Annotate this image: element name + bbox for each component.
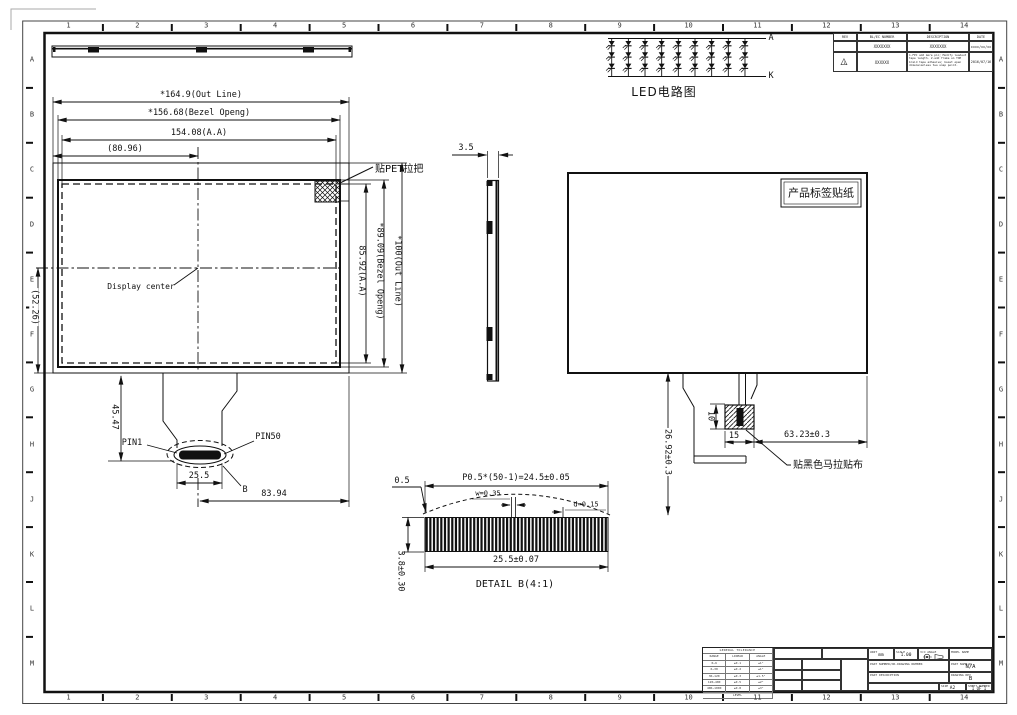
led-symbol bbox=[706, 52, 715, 61]
grid-column-label: 8 bbox=[549, 23, 553, 30]
grid-row-label: K bbox=[30, 551, 34, 558]
led-symbol bbox=[689, 41, 698, 50]
detail-b-title: DETAIL B(4:1) bbox=[476, 580, 554, 590]
unit-cell: UNITmm bbox=[868, 648, 894, 660]
led-symbol bbox=[689, 52, 698, 61]
projection-angle-cell: 3rd ANGLE bbox=[918, 648, 949, 660]
grid-column-label: 14 bbox=[960, 23, 968, 30]
grid-column-label: 5 bbox=[342, 695, 346, 702]
dim-bezel-height: *89.09(Bezel Openg) bbox=[375, 222, 384, 319]
led-symbol bbox=[623, 41, 632, 50]
detail-mark-label: B bbox=[242, 486, 247, 495]
size-cell: SIZEA2 bbox=[939, 683, 966, 692]
rev-row2-date: 2016/07/16 bbox=[969, 52, 993, 72]
grid-row-label: C bbox=[30, 167, 34, 174]
led-symbol bbox=[656, 52, 665, 61]
led-symbol bbox=[623, 64, 632, 73]
slash-cell: / bbox=[868, 683, 939, 692]
grid-row-label: B bbox=[30, 112, 34, 119]
led-symbol bbox=[606, 52, 615, 61]
led-symbol bbox=[606, 64, 615, 73]
sheet-number-cell: SHEET NUMBER1 OF 1 bbox=[966, 683, 992, 692]
drawing-rev-value: B bbox=[950, 676, 991, 682]
grid-row-label: C bbox=[999, 167, 1003, 174]
rev-row2-description-value: 1.FPC add more pin; Modify leadout tape … bbox=[908, 53, 968, 68]
grid-column-label: 2 bbox=[135, 23, 139, 30]
part-name-value: N/A bbox=[950, 664, 991, 671]
grid-row-label: F bbox=[30, 331, 34, 338]
dim-end-margin: 0.5 bbox=[394, 477, 409, 486]
rev-row2-rev: △1 bbox=[833, 52, 857, 72]
grid-row-label: A bbox=[30, 57, 34, 64]
scale-cell: SCALE1.00 bbox=[894, 648, 918, 660]
grid-row-label: E bbox=[999, 277, 1003, 284]
led-symbol bbox=[606, 41, 615, 50]
triangle-number: 1 bbox=[844, 61, 846, 65]
grid-row-label: H bbox=[30, 441, 34, 448]
grid-row-label: F bbox=[999, 331, 1003, 338]
pet-tab-label: 贴PET拉把 bbox=[375, 165, 423, 175]
rev-row2-number: XXXXXX bbox=[857, 52, 907, 72]
grid-column-label: 9 bbox=[618, 23, 622, 30]
grid-column-label: 6 bbox=[411, 23, 415, 30]
rev-header-date: DATE bbox=[969, 33, 993, 41]
grid-row-label: J bbox=[999, 496, 1003, 503]
grid-row-label: H bbox=[999, 441, 1003, 448]
led-symbol bbox=[673, 64, 682, 73]
dim-center-y: (52.26) bbox=[30, 288, 39, 326]
tolerance-row: LEVEL bbox=[703, 693, 773, 699]
sheet-corner-mark bbox=[11, 9, 96, 30]
led-symbol bbox=[723, 64, 732, 73]
led-symbol bbox=[656, 64, 665, 73]
led-symbol bbox=[723, 41, 732, 50]
led-anode-label: A bbox=[768, 34, 773, 43]
general-tolerance-table: GENERAL TOLERANCERANGELINEARANGLE0~6±0.1… bbox=[703, 648, 774, 691]
dim-outline-width: *164.9(Out Line) bbox=[160, 91, 242, 100]
dim-pitch: P0.5*(50-1)=24.5±0.05 bbox=[462, 474, 569, 483]
grid-row-label: B bbox=[999, 112, 1003, 119]
dim-connector-offset: 83.94 bbox=[261, 490, 287, 499]
led-symbol bbox=[706, 64, 715, 73]
grid-row-label: K bbox=[999, 551, 1003, 558]
rev-row1-description: XXXXXXX bbox=[907, 41, 969, 52]
pin50-label: PIN50 bbox=[255, 433, 281, 442]
grid-row-label: A bbox=[999, 57, 1003, 64]
led-cathode-label: K bbox=[768, 72, 773, 81]
sheet-number-value: 1 OF 1 bbox=[967, 687, 991, 691]
grid-column-label: 10 bbox=[684, 695, 692, 702]
dim-tail-length: 45.47 bbox=[110, 404, 119, 430]
grid-row-label: M bbox=[30, 661, 34, 668]
grid-column-label: 13 bbox=[891, 23, 899, 30]
dim-thickness: 3.5 bbox=[458, 144, 473, 153]
led-symbol bbox=[639, 64, 648, 73]
display-center-label: Display center bbox=[107, 283, 174, 291]
dim-bezel-width: *156.68(Bezel Openg) bbox=[148, 109, 250, 118]
grid-column-label: 6 bbox=[411, 695, 415, 702]
rev-row2-description: 1.FPC add more pin; Modify leadout tape … bbox=[907, 52, 969, 72]
dim-pin-width: w=0.35 bbox=[475, 491, 500, 498]
rev-row1-date: xxxx/xx/xx bbox=[969, 41, 993, 52]
grid-row-label: D bbox=[999, 222, 1003, 229]
drawing-rev-cell: DRAWING REVB bbox=[949, 672, 992, 683]
signature-spacer-cell bbox=[841, 659, 868, 692]
revision-triangle-icon: △1 bbox=[841, 58, 850, 67]
drawing-frame bbox=[23, 21, 1007, 704]
grid-column-label: 1 bbox=[66, 695, 70, 702]
dim-outline-height: *100(Out Line) bbox=[393, 235, 402, 307]
grid-column-label: 12 bbox=[822, 23, 830, 30]
dim-aa-width: 154.08(A.A) bbox=[171, 129, 227, 138]
grid-column-label: 11 bbox=[753, 23, 761, 30]
grid-column-label: 2 bbox=[135, 695, 139, 702]
rev-header-number: BL/EC NUMBER bbox=[857, 33, 907, 41]
third-angle-projection-icon bbox=[923, 653, 945, 661]
grid-row-label: G bbox=[999, 386, 1003, 393]
grid-row-label: L bbox=[30, 606, 34, 613]
critical-dimension-mark-cell: Ⓔ [MC]CRITICAL DIMENSION bbox=[774, 648, 822, 659]
led-symbol bbox=[689, 64, 698, 73]
rev-row1-rev bbox=[833, 41, 857, 52]
dim-detail-height: 3.8±0.30 bbox=[396, 551, 405, 592]
dim-pin-gap: d=0.15 bbox=[573, 502, 598, 509]
part-description-label: PART DESCRIPTION bbox=[870, 673, 899, 677]
model-name-label: MODEL NAME bbox=[951, 650, 969, 654]
revision-table: REV BL/EC NUMBER DESCRIPTION DATE XXXXXX… bbox=[833, 33, 993, 72]
spec-dimension-mark-cell: Ⓒ SPEC DIMENSION bbox=[822, 648, 868, 659]
designed-name-cell: Yuanxiufu bbox=[802, 680, 841, 691]
rev-header-description: DESCRIPTION bbox=[907, 33, 969, 41]
dim-back-tail-length: 26.92±0.3 bbox=[663, 428, 672, 476]
grid-column-label: 13 bbox=[891, 695, 899, 702]
led-symbol bbox=[639, 41, 648, 50]
approved-name-cell: Coll Chen bbox=[802, 659, 841, 670]
led-circuit-diagram bbox=[606, 39, 766, 77]
grid-column-label: 10 bbox=[684, 23, 692, 30]
dim-connector-width: 25.5 bbox=[189, 472, 209, 481]
grid-column-label: 14 bbox=[960, 695, 968, 702]
grid-row-label: D bbox=[30, 222, 34, 229]
grid-column-label: 7 bbox=[480, 23, 484, 30]
rev-row2-date-value: 2016/07/16 bbox=[971, 60, 991, 64]
grid-column-label: 4 bbox=[273, 695, 277, 702]
product-label-sticker: 产品标签贴纸 bbox=[788, 188, 854, 199]
grid-column-label: 3 bbox=[204, 23, 208, 30]
led-circuit-title: LED电路图 bbox=[631, 86, 697, 98]
title-block: GENERAL TOLERANCERANGELINEARANGLE0~6±0.1… bbox=[702, 647, 993, 692]
led-symbol bbox=[723, 52, 732, 61]
dim-detail-width: 25.5±0.07 bbox=[493, 556, 539, 565]
model-name-cell: MODEL NAME bbox=[949, 648, 992, 660]
dim-tab-height: 10 bbox=[706, 411, 715, 421]
grid-column-label: 1 bbox=[66, 23, 70, 30]
grid-row-label: M bbox=[999, 661, 1003, 668]
part-number-cell: PART NUMBER/OR-DRAWING NUMBER bbox=[868, 660, 949, 672]
led-symbol bbox=[739, 52, 748, 61]
led-symbol bbox=[673, 52, 682, 61]
rev-header-description-label: DESCRIPTION bbox=[927, 35, 949, 39]
grid-column-label: 11 bbox=[753, 695, 761, 702]
rev-header-rev-label: REV bbox=[842, 35, 848, 39]
pin1-label: PIN1 bbox=[122, 439, 142, 448]
scale-value: 1.00 bbox=[895, 652, 917, 659]
grid-row-label: J bbox=[30, 496, 34, 503]
rev-header-rev: REV bbox=[833, 33, 857, 41]
rev-row1-number: XXXXXXX bbox=[857, 41, 907, 52]
dim-tab-offset: 63.23±0.3 bbox=[784, 431, 830, 440]
grid-row-label: G bbox=[30, 386, 34, 393]
rev-header-number-label: BL/EC NUMBER bbox=[870, 35, 895, 39]
checked-name-cell: Xiaonan Su bbox=[802, 670, 841, 681]
rev-row2-number-value: XXXXXX bbox=[875, 60, 889, 65]
top-view bbox=[52, 46, 352, 57]
checked-label-cell: CHECKED bbox=[774, 670, 802, 681]
engineering-drawing-sheet: *164.9(Out Line) *156.68(Bezel Openg) 15… bbox=[0, 0, 1017, 715]
dim-tab-width: 15 bbox=[728, 432, 740, 441]
side-view bbox=[452, 151, 513, 381]
led-symbol bbox=[706, 41, 715, 50]
part-description-cell: PART DESCRIPTION bbox=[868, 672, 949, 683]
grid-column-label: 4 bbox=[273, 23, 277, 30]
grid-column-label: 12 bbox=[822, 695, 830, 702]
grid-column-label: 3 bbox=[204, 695, 208, 702]
designed-label-cell: DESIGNED bbox=[774, 680, 802, 691]
grid-column-label: 9 bbox=[618, 695, 622, 702]
part-number-label: PART NUMBER/OR-DRAWING NUMBER bbox=[870, 662, 922, 666]
rev-row1-number-value: XXXXXXX bbox=[874, 44, 891, 49]
approved-label-cell: APPROVED bbox=[774, 659, 802, 670]
rev-row1-date-value: xxxx/xx/xx bbox=[971, 45, 991, 49]
size-value: A2 bbox=[940, 687, 965, 691]
dim-aa-height: 85.92(A.A) bbox=[357, 245, 366, 296]
grid-row-label: L bbox=[999, 606, 1003, 613]
mylar-tape-label: 贴黑色马拉贴布 bbox=[793, 461, 863, 471]
led-symbol bbox=[673, 41, 682, 50]
dim-center-x: (80.96) bbox=[107, 145, 143, 154]
part-name-cell: PART NAME(R)N/A bbox=[949, 660, 992, 672]
grid-column-label: 7 bbox=[480, 695, 484, 702]
rev-row1-description-value: XXXXXXX bbox=[930, 44, 947, 49]
grid-row-label: E bbox=[30, 277, 34, 284]
led-symbol bbox=[656, 41, 665, 50]
unit-value: mm bbox=[869, 652, 893, 659]
led-symbol bbox=[639, 52, 648, 61]
led-symbol bbox=[739, 64, 748, 73]
rev-header-date-label: DATE bbox=[977, 35, 985, 39]
front-view bbox=[34, 97, 407, 507]
led-symbol bbox=[739, 41, 748, 50]
grid-column-label: 8 bbox=[549, 695, 553, 702]
grid-column-label: 5 bbox=[342, 23, 346, 30]
led-symbol bbox=[623, 52, 632, 61]
